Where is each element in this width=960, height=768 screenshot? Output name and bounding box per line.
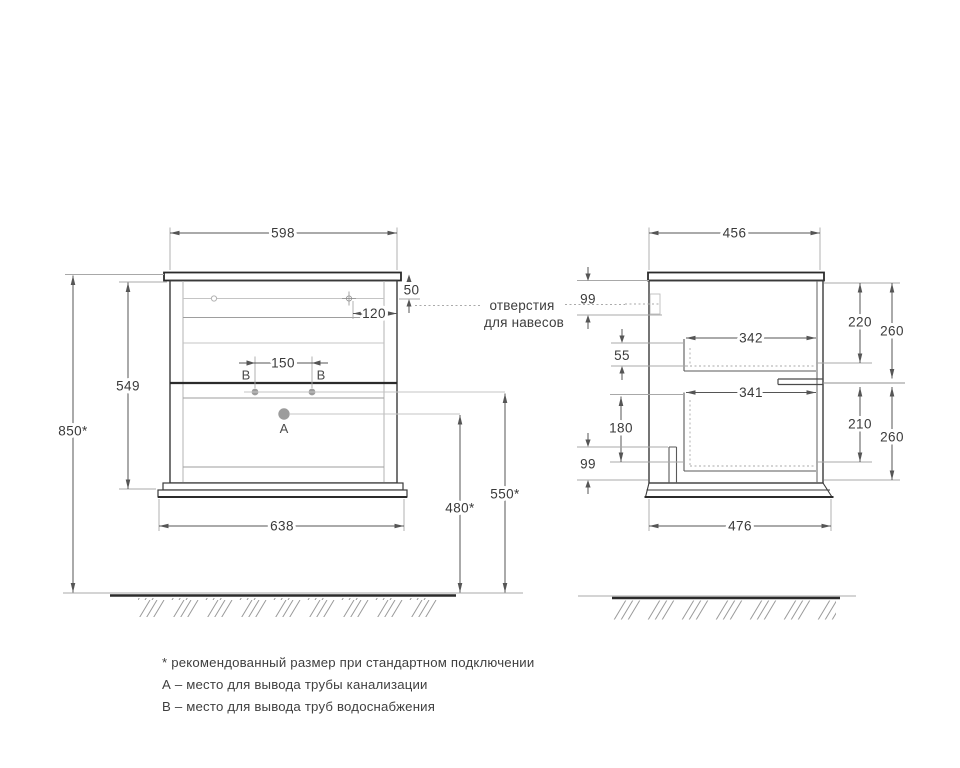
callout-line2: для навесов [484, 315, 564, 330]
dim-side-top-depth: 456 [649, 226, 820, 271]
dim-label-lower-drawer-height: 210 [848, 417, 872, 432]
front-ground [63, 593, 523, 617]
dim-side-upper-section-height: 260 [880, 283, 904, 379]
hanger-hole-target [342, 292, 356, 306]
dim-label-upper-section-height: 260 [880, 324, 904, 339]
dim-label-top-depth: 456 [723, 226, 747, 241]
callout-line1: отверстия [489, 298, 554, 313]
dim-label-base-width: 638 [270, 519, 294, 534]
dim-side-lower-drawer-height: 210 [848, 387, 872, 462]
side-floor-hatch [610, 601, 836, 620]
dim-label-b-outlet-height: 550* [490, 487, 520, 502]
side-ground [578, 596, 856, 620]
dim-label-total-height: 850* [58, 424, 88, 439]
front-plinth-step [163, 483, 403, 490]
dim-side-upper-drawer-depth: 342 [686, 331, 816, 346]
dim-side-lower-section-height: 260 [880, 387, 904, 480]
dim-label-upper-drawer-top: 55 [614, 348, 630, 363]
spec-sheet-page: 598 50 120 150 [0, 0, 960, 768]
side-cabinet [625, 273, 905, 498]
side-pipe-outlet [669, 447, 677, 483]
dim-label-cabinet-height: 549 [116, 379, 140, 394]
legend-note-a: А – место для вывода трубы канализации [162, 677, 428, 692]
dim-label-upper-drawer-depth: 342 [739, 331, 763, 346]
dim-side-lower-drawer-depth: 341 [610, 385, 816, 400]
dim-front-worktop-to-holes: 50 [399, 275, 420, 314]
dim-label-upper-drawer-height: 220 [848, 315, 872, 330]
dim-front-cabinet-height: 549 [116, 282, 167, 489]
dim-label-a-outlet-height: 480* [445, 501, 475, 516]
dim-front-base-width: 638 [159, 499, 404, 534]
side-lower-drawer [684, 393, 816, 472]
dim-side-outlet-offset: 180 [609, 397, 684, 463]
side-cabinet-body [649, 281, 823, 484]
side-view: 456 99 55 342 [577, 226, 905, 620]
side-worktop [648, 273, 824, 281]
dim-label-lower-section-height: 260 [880, 430, 904, 445]
front-plinth-base [158, 490, 407, 497]
front-worktop [164, 273, 401, 281]
side-plinth [645, 483, 834, 497]
dim-side-base-depth: 476 [649, 499, 831, 534]
dim-label-lower-drawer-depth: 341 [739, 385, 763, 400]
dim-label-base-depth: 476 [728, 519, 752, 534]
dim-label-top-width: 598 [271, 226, 295, 241]
dim-label-bottom-offset: 99 [580, 457, 596, 472]
front-view: 598 50 120 150 [58, 226, 523, 618]
legend-note-asterisk: * рекомендованный размер при стандартном… [162, 655, 534, 670]
label-a: A [280, 421, 289, 436]
dim-label-hole-inset: 120 [362, 306, 386, 321]
front-floor-hatch [138, 598, 442, 617]
label-b-right: B [317, 368, 326, 383]
dim-front-top-width: 598 [170, 226, 397, 271]
side-drawer-rail [778, 379, 905, 385]
dim-label-outlet-offset: 180 [609, 421, 633, 436]
hole-a [278, 408, 289, 419]
dim-label-b-spacing: 150 [271, 356, 295, 371]
legend-note-b: В – место для вывода труб водоснабжения [162, 699, 435, 714]
legend: * рекомендованный размер при стандартном… [162, 655, 534, 714]
hanger-hole-left [211, 296, 216, 301]
dim-front-a-outlet-height: 480* [290, 414, 475, 593]
dim-front-total-height: 850* [58, 275, 164, 593]
dim-side-bottom-offset: 99 [577, 433, 668, 494]
label-b-left: B [242, 368, 251, 383]
technical-drawing: 598 50 120 150 [0, 0, 960, 768]
dim-label-worktop-to-holes: 50 [404, 283, 420, 298]
dim-side-upper-drawer-height: 220 [848, 283, 872, 363]
